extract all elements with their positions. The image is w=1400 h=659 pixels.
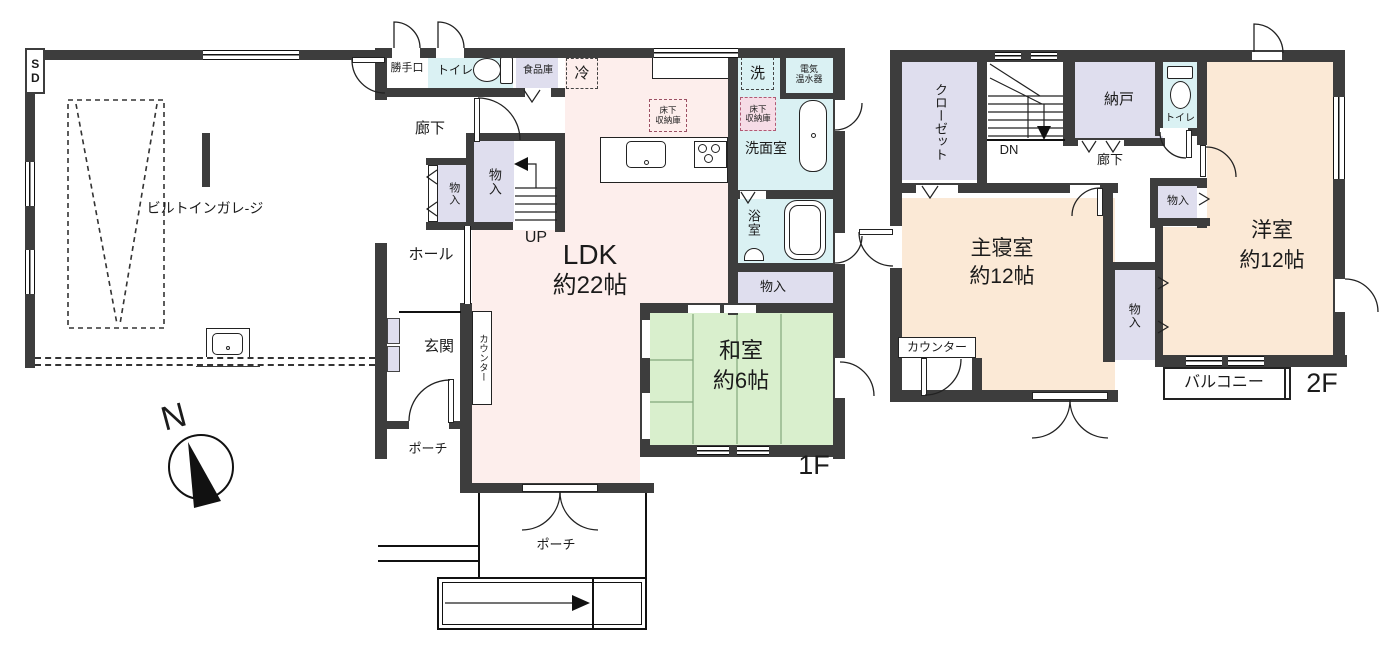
storage-mid-2f-label: 物入 [1123,294,1145,338]
door-leaf [1186,130,1192,158]
storage-small-1f-label: 物入 [442,172,464,216]
floor1-label: 1F [786,450,842,480]
storage-bath-label: 物入 [752,277,794,297]
sliding-door [464,226,471,304]
door-arc-master-south-right [1070,400,1108,438]
wall-opening [392,48,420,58]
counter-1f-label: カウンター [473,315,491,401]
wall-opening [740,191,766,199]
storage-large-1f-label: 物入 [483,156,505,208]
porch-main-label: ポーチ [529,537,583,553]
wall-opening [1160,128,1188,136]
bathtub-inner [789,205,821,255]
wall-segment [25,50,379,60]
garage-sink-drain [226,346,230,350]
wall-segment [977,50,987,190]
washitsu-label: 和室 [691,338,791,364]
window [1333,97,1345,179]
wall-opening [1197,188,1207,218]
toilet-bowl-1f [473,58,501,82]
stove-burner-1 [698,144,707,153]
heater-line2: 温水器 [795,75,822,85]
wall-opening [835,100,845,131]
stairs-1f-arrowhead [514,157,528,171]
underfloor-storage-washroom: 床下 収納庫 [740,97,776,131]
wall-opening [525,88,551,97]
wall-segment [1103,262,1115,362]
wall-opening [724,305,756,313]
line [399,311,461,313]
stairs-1f-treads [515,188,557,220]
storage-small-door [428,165,438,222]
entrance-label: 玄関 [416,338,462,356]
door-arc-entrance [409,380,450,421]
wall-opening [835,358,845,398]
window [654,48,738,58]
master-size-label: 約12帖 [942,264,1062,290]
door-leaf [352,57,385,63]
garage-pillar [202,133,210,187]
window [1031,52,1057,60]
toilet-1f-label: トイレ [434,62,476,78]
window [1228,356,1264,366]
door-leaf [921,358,927,396]
shoe-cabinet-a [387,318,400,344]
wall-segment [1103,183,1113,270]
room-western-a [1207,62,1333,355]
walkway-divider [592,577,594,630]
toilet-bowl-2f [1170,81,1191,109]
kitchen-cupboard [652,57,728,79]
floor-plan: 冷 洗 床下 収納庫 床下 収納庫 電気 温水器 SD N [0,0,1400,659]
line [987,139,1065,141]
wall-segment [460,303,472,455]
door-arc-western-ext [1345,279,1378,312]
wall-opening [409,421,449,429]
door-leaf [1032,392,1108,400]
wall-segment [780,53,786,97]
shoe-cabinet-b [387,346,400,372]
stairs-2f-arrowhead [1037,126,1051,140]
wall-segment [555,133,565,232]
wall-segment [728,48,738,272]
door-arc-master-south-left [1032,400,1070,438]
fridge-box: 冷 [566,58,598,89]
closet-2f-label: クローゼット [929,70,951,174]
counter-2f-label: カウンター [900,340,974,355]
door-leaf [1097,188,1103,216]
master-label: 主寝室 [946,236,1058,262]
wall-opening [916,185,958,193]
underfloor-wash-line2: 収納庫 [745,114,771,123]
balcony-rail-line [1284,369,1286,398]
wall-segment [375,243,387,459]
garage-shutter-front [35,357,375,366]
ldk-label: LDK [520,240,660,270]
window [995,52,1021,60]
garage-label: ビルトインガレ-ジ [120,199,290,217]
storage-small-2f-label: 物入 [1160,194,1196,210]
underfloor-ldk-line2: 収納庫 [655,116,681,125]
wall-opening [1070,185,1100,193]
wall-segment [466,141,474,230]
kitchen-sink-drain [644,160,649,165]
wall-opening [642,320,650,358]
washer-box: 洗 [741,57,774,90]
wall-opening [835,233,845,264]
washroom-label: 洗面室 [737,139,795,157]
door-leaf [859,229,893,235]
garage-sink-basin [212,333,243,355]
wall-opening [642,393,650,439]
door-arc-ldk-south-left [522,492,560,530]
ldk-size-label: 約22帖 [505,272,675,300]
western-label: 洋室 [1240,218,1304,244]
room-ldk-c [565,303,640,483]
katteguchi-label: 勝手口 [386,62,428,76]
wall-segment [1155,50,1163,136]
wall-segment [25,50,35,368]
dn-label: DN [994,142,1024,158]
stairs-2f-treads [988,96,1063,136]
bath-stool [744,248,764,261]
stairs-2f-fan [990,64,1042,104]
washitsu-size-label: 約6帖 [679,368,803,394]
pantry-label: 食品庫 [518,65,558,78]
door-arc-katteguchi [394,22,420,48]
walkway-inner [442,582,642,625]
fridge-label: 冷 [574,66,589,82]
door-leaf [1200,145,1206,177]
door-leaf [474,98,480,142]
shutter-label: SD [27,50,43,92]
wall-segment [972,358,982,402]
wall-segment [466,133,565,141]
window-casement-master [859,232,893,266]
compass-circle [168,434,234,500]
porch-side-label: ポーチ [402,441,454,457]
window [697,446,729,455]
door-leaf [448,379,454,423]
window [25,250,35,294]
toilet-tank-1f [500,57,513,84]
line [378,560,478,562]
room-western-b [1163,227,1207,355]
vanity-drain [811,133,816,138]
line [378,545,478,547]
wall-segment [1155,218,1163,363]
stove-burner-2 [711,144,720,153]
window [203,50,299,60]
stairs-1f-arrow [526,164,536,188]
western-size-label: 約12帖 [1212,248,1332,274]
nando-label: 納戸 [1098,91,1140,109]
line [478,493,480,577]
wall-segment [1063,50,1075,146]
wall-opening [688,305,720,313]
floor2-label: 2F [1298,368,1346,398]
window [25,162,35,206]
wall-opening [436,48,464,58]
corridor-2f-label: 廊下 [1088,152,1132,168]
wall-segment [728,263,845,272]
door-arc-western-top [1254,24,1283,53]
line [645,493,647,577]
underfloor-storage-ldk: 床下 収納庫 [649,99,687,132]
water-heater-box: 電気 温水器 [786,55,832,95]
wall-segment [780,93,833,99]
bathroom-label: 浴室 [745,202,761,244]
wall-opening [1252,52,1282,60]
hall-label: ホール [404,246,458,264]
balcony-label: バルコニー [1172,372,1276,394]
wall-segment [1150,178,1207,186]
window [737,446,769,455]
wall-segment [426,158,470,165]
toilet-2f-label: トイレ [1163,113,1197,126]
door-leaf [522,484,598,492]
stove-burner-3 [704,154,713,163]
door-arc-ldk-south-right [560,492,598,530]
door-arc-toilet-1f [438,22,464,48]
toilet-tank-2f [1167,66,1193,79]
window [1186,356,1222,366]
door-arc-washitsu-ext [840,362,874,396]
corridor-1f-label: 廊下 [403,120,457,138]
wall-opening [1078,140,1124,146]
washer-label: 洗 [750,66,765,82]
wall-opening [1335,279,1345,312]
